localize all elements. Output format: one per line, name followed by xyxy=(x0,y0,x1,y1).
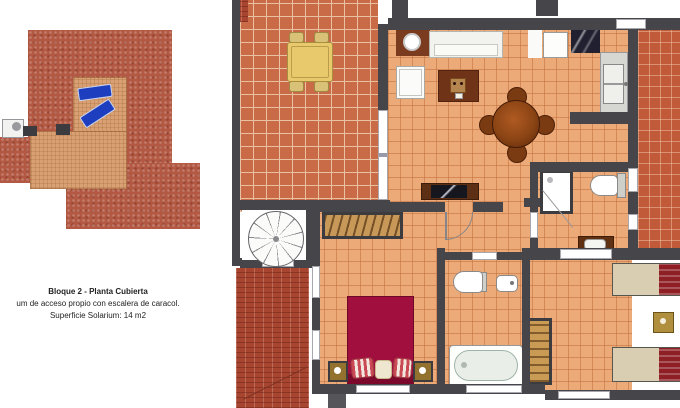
pillow-right xyxy=(392,357,413,379)
door-bathroom2 xyxy=(472,252,497,260)
shower-drain-dot xyxy=(547,177,553,183)
wall-stub-top-2 xyxy=(536,0,558,16)
wall-bedroom-bath2 xyxy=(437,248,445,394)
nightstand-bedroom2-dot xyxy=(660,318,666,324)
sink-2 xyxy=(496,275,518,292)
sloped-roof xyxy=(236,268,309,408)
wardrobe-master xyxy=(322,212,403,239)
toilet-2-bowl xyxy=(453,271,483,293)
side-table-inner xyxy=(399,69,422,96)
lamp-icon xyxy=(403,33,421,51)
fridge xyxy=(543,32,568,58)
roof-planter-1 xyxy=(23,126,37,136)
pillow-center xyxy=(375,360,392,379)
door-bedroom2 xyxy=(560,249,612,259)
roof-step xyxy=(328,392,346,408)
wall-south-living-a xyxy=(318,202,445,212)
wall-west-living-upper xyxy=(378,24,388,112)
wall-bathroom1-left xyxy=(530,162,538,258)
window-bedroom-west-2 xyxy=(312,330,320,360)
wall-stub-top-1 xyxy=(392,0,408,20)
cooktop xyxy=(571,30,600,53)
floor-plan-sheet: Bloque 2 - Planta Cubierta um de acceso … xyxy=(0,0,680,408)
window-terrace-living xyxy=(378,110,388,200)
armchair-cushion xyxy=(450,78,466,93)
door-bathroom1 xyxy=(530,212,538,238)
patio-chair-4 xyxy=(314,81,329,92)
front-terrace-floor xyxy=(240,0,378,212)
spiral-hub-dot xyxy=(273,236,279,242)
door-side-terrace xyxy=(628,168,638,192)
tv-screen-icon xyxy=(431,185,467,198)
caption-title: Bloque 2 - Planta Cubierta xyxy=(0,286,218,298)
patio-table-inner xyxy=(291,46,329,78)
nightstand-left-lamp-dot xyxy=(334,367,341,374)
patio-chair-3 xyxy=(289,81,304,92)
caption-subtitle: um de acceso propio con escalera de cara… xyxy=(0,298,218,310)
sofa-seat-line xyxy=(434,44,498,56)
armchair-dot-2 xyxy=(460,82,463,85)
nightstand-right-lamp-dot xyxy=(419,367,426,374)
kitchen-sink-icon xyxy=(603,64,624,104)
window-bedroom-south xyxy=(356,385,410,393)
window-side-terrace xyxy=(628,214,638,230)
roof-left-section xyxy=(0,137,30,183)
wall-bath2-right xyxy=(522,252,530,394)
wall-left xyxy=(232,0,240,266)
landing-hatch-icon xyxy=(12,122,21,131)
roof-planter-2 xyxy=(56,124,70,135)
bathtub-drain-dot xyxy=(461,362,467,368)
wall-bathroom1-top xyxy=(538,162,638,172)
round-dining-table xyxy=(492,100,540,148)
pillow-left xyxy=(350,357,375,379)
caption-area: Superficie Solarium: 14 m2 xyxy=(0,310,218,322)
door-bedroom2-south xyxy=(558,391,610,399)
window-bedroom-west-1 xyxy=(312,266,320,298)
wall-shower-stub xyxy=(524,198,540,207)
solarium-deck-horizontal xyxy=(30,131,127,189)
sink-2-dot xyxy=(510,281,514,285)
armchair-dot-1 xyxy=(453,82,456,85)
plan-caption: Bloque 2 - Planta Cubierta um de acceso … xyxy=(0,286,218,322)
toilet-1-tank xyxy=(617,173,626,198)
single-bed-2-pillow xyxy=(659,348,680,381)
window-top-wall xyxy=(616,19,646,29)
side-terrace-floor xyxy=(638,24,680,252)
toilet-1-bowl xyxy=(590,175,618,196)
wall-south-living-b xyxy=(473,202,503,212)
window-bathroom2-south xyxy=(466,385,522,393)
wardrobe-bedroom2 xyxy=(527,318,552,385)
single-bed-1-pillow xyxy=(659,264,680,295)
armchair-item xyxy=(455,93,463,99)
kitchen-partition xyxy=(528,28,542,58)
